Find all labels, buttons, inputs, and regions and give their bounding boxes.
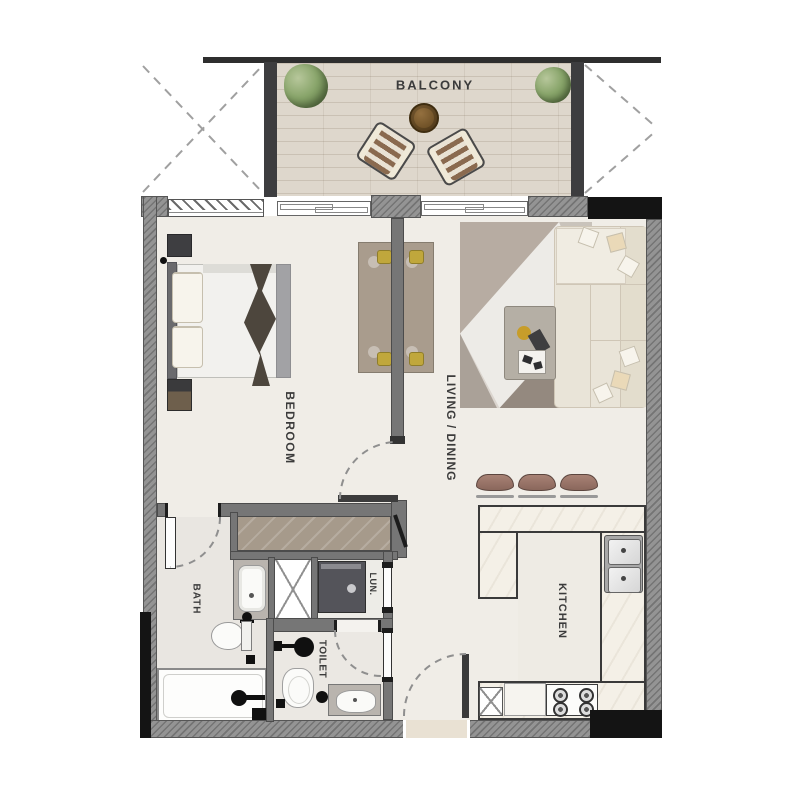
- room-label-living-dining: LIVING / DINING: [444, 374, 458, 481]
- room-label-bedroom: BEDROOM: [283, 391, 297, 464]
- corner-brace-mark: [395, 515, 406, 547]
- floor-plan: BALCONY BEDROOM LIVING / DINING KITCHEN …: [0, 0, 800, 800]
- room-label-toilet: TOILET: [317, 640, 328, 678]
- room-label-laundry: LUN.: [368, 573, 378, 596]
- room-label-kitchen: KITCHEN: [556, 583, 568, 639]
- room-label-balcony: BALCONY: [396, 78, 474, 93]
- annotation-overlay: [0, 0, 800, 800]
- room-label-bath: BATH: [191, 583, 202, 614]
